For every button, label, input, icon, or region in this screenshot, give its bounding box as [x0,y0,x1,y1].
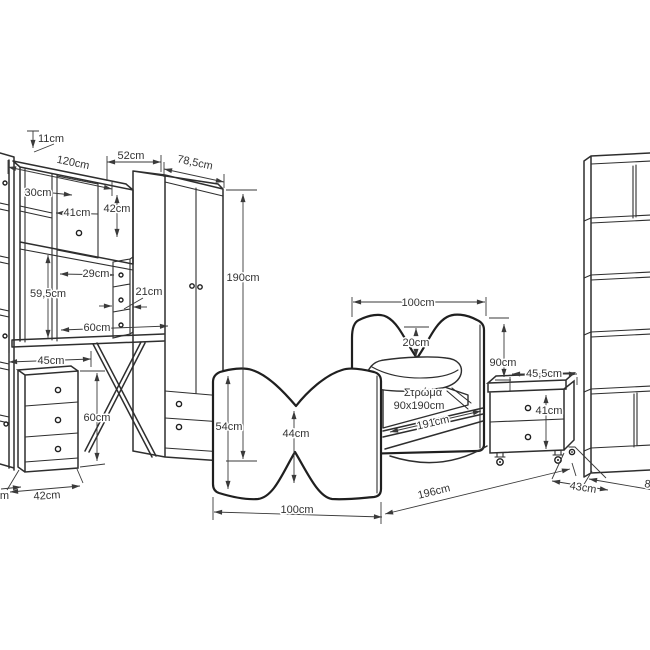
wardrobe [133,171,223,461]
dim-small-drawers-width: 21cm [136,286,163,298]
bed [213,315,487,500]
dim-footboard-height: 54cm [216,421,243,433]
dim-headboard-notch: 20cm [403,337,430,349]
pedestal-knob [55,446,60,451]
dim-wardrobe-height: 190cm [226,272,259,284]
dim-nightstand-width: 45,5cm [526,368,562,380]
pedestal-knob [55,417,60,422]
cabinet-knob [3,181,7,185]
pedestal-knob [55,387,60,392]
left-partial-cabinet [0,153,14,470]
desk-x-legs [85,342,156,457]
mattress-label-line1: Στρώμα [404,387,443,399]
sliding-door-knob [76,230,81,235]
dim-nightstand-height: 41cm [536,405,563,417]
dim-pedestal-height: 60cm [84,412,111,424]
wardrobe-door-knob [198,285,202,289]
cabinet-knob [4,422,8,426]
nightstand [488,373,575,465]
caster-wheel [495,453,505,457]
diagram-canvas: 11cm 120cm 52cm 78,5cm 30cm 41cm 42cm 29… [0,0,650,650]
dim-open-height: 59,5cm [30,288,66,300]
nightstand-knob [525,434,530,439]
dim-hutch-right-height: 42cm [104,203,131,215]
dim-headboard-height: 90cm [490,357,517,369]
bookshelf-outline [584,153,650,477]
dim-pedestal-width: 42cm [33,489,61,503]
wardrobe-drawer-knob [176,424,181,429]
dim-hutch-top-depth: 11cm [38,133,64,145]
caster-wheel [553,451,563,455]
dim-open-shelf-width: 29cm [83,268,110,280]
bookshelf [584,153,650,477]
dim-hutch-left-height: 30cm [25,187,52,199]
dim-bookshelf-width: 80cm [644,478,650,494]
dim-footboard-width: 100cm [280,504,313,516]
dim-left-edge-partial: cm [0,490,9,502]
dim-knee-span: 45cm [38,355,65,367]
dim-surface-span: 60cm [84,322,111,334]
desk-pedestal [18,366,78,472]
wardrobe-drawer-knob [176,401,181,406]
small-drawer-knob [119,273,123,277]
dim-desk-width: 120cm [56,154,91,172]
dim-footboard-waist: 44cm [283,428,310,440]
furniture-dimension-diagram: 11cm 120cm 52cm 78,5cm 30cm 41cm 42cm 29… [0,0,650,650]
nightstand-knob [525,405,530,410]
dim-upper-section-width: 52cm [118,150,145,162]
small-drawer-knob [119,323,123,327]
dim-hutch-door-width: 41cm [64,207,91,219]
mattress-label-line2: 90x190cm [394,400,445,412]
cabinet-knob [3,334,7,338]
small-drawer-knob [119,298,123,302]
wardrobe-door-knob [190,284,194,288]
dim-wardrobe-width: 78,5cm [176,153,214,172]
wardrobe-outline [133,171,223,461]
dim-headboard-width: 100cm [401,297,434,309]
bookshelf-shelves [584,161,650,451]
dim-nightstand-depth: 43cm [569,480,597,496]
desk-surface [12,334,164,347]
